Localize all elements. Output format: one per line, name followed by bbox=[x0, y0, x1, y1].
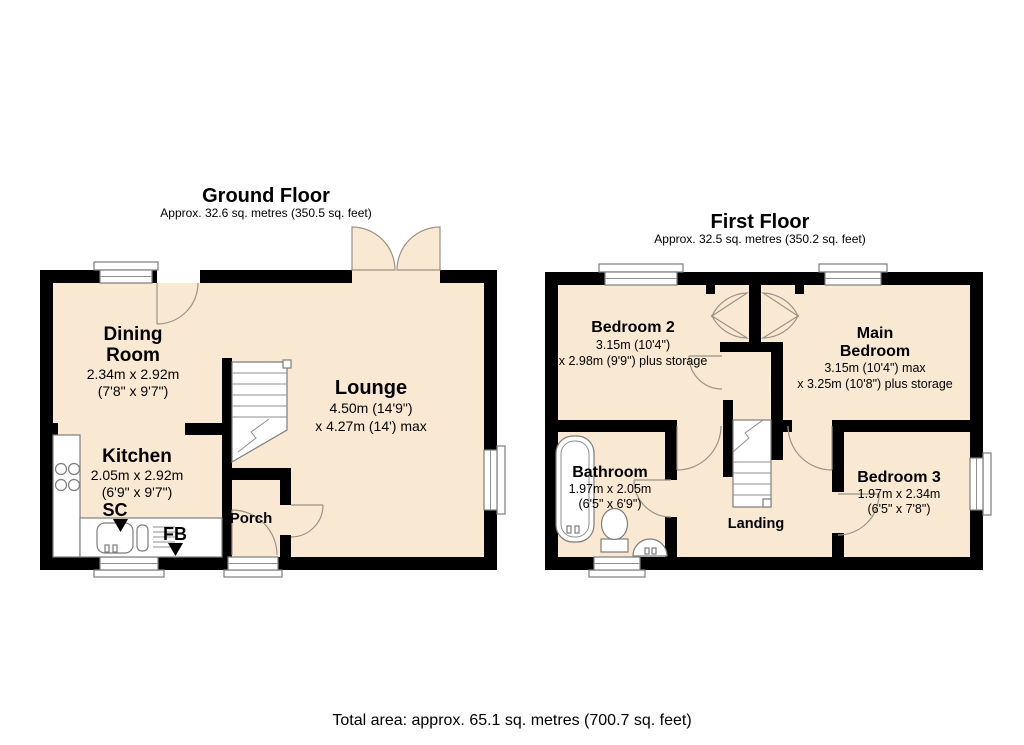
main-bedroom-dims-1: 3.15m (10'4") max bbox=[824, 361, 926, 375]
bathroom-label: Bathroom bbox=[572, 464, 648, 481]
bedroom3-window-icon bbox=[970, 453, 991, 515]
fb-label: FB bbox=[163, 524, 187, 544]
first-floor-plan: Bedroom 2 3.15m (10'4") x 2.98m (9'9") p… bbox=[535, 250, 995, 585]
dining-room-label2: Room bbox=[106, 345, 160, 366]
kitchen-label: Kitchen bbox=[102, 446, 172, 467]
main-bedroom-dims-2: x 3.25m (10'8") plus storage bbox=[797, 377, 953, 391]
bedroom3-dims-metric: 1.97m x 2.34m bbox=[858, 487, 941, 501]
porch-label: Porch bbox=[230, 510, 273, 527]
toilet-icon bbox=[601, 509, 628, 553]
bedroom2-dims-2: x 2.98m (9'9") plus storage bbox=[559, 354, 708, 368]
french-doors-icon bbox=[352, 227, 440, 283]
bedroom2-window-icon bbox=[599, 264, 683, 285]
ground-floor-plan: Dining Room 2.34m x 2.92m (7'8" x 9'7") … bbox=[30, 215, 520, 585]
ground-floor-title: Ground Floor bbox=[116, 186, 416, 206]
lounge-dims-1: 4.50m (14'9") bbox=[329, 400, 412, 416]
kitchen-window-icon bbox=[94, 557, 164, 577]
main-bedroom-label: Main bbox=[857, 325, 893, 342]
bedroom2-label: Bedroom 2 bbox=[591, 319, 675, 336]
sc-label: SC bbox=[102, 500, 127, 520]
bathroom-dims-metric: 1.97m x 2.05m bbox=[569, 482, 652, 496]
floorplan-page: Ground Floor Approx. 32.6 sq. metres (35… bbox=[0, 0, 1024, 745]
landing-label: Landing bbox=[728, 516, 784, 532]
dining-room-label: Dining bbox=[103, 324, 162, 345]
main-bedroom-window-icon bbox=[819, 264, 887, 285]
main-bedroom-label2: Bedroom bbox=[840, 343, 910, 360]
lounge-label: Lounge bbox=[335, 377, 407, 399]
dining-room-dims-metric: 2.34m x 2.92m bbox=[87, 366, 180, 382]
total-area-label: Total area: approx. 65.1 sq. metres (700… bbox=[0, 712, 1024, 730]
kitchen-dims-imperial: (6'9" x 9'7") bbox=[102, 484, 173, 500]
bedroom3-dims-imperial: (6'5" x 7'8") bbox=[868, 502, 931, 516]
first-floor-subtitle: Approx. 32.5 sq. metres (350.2 sq. feet) bbox=[610, 233, 910, 246]
bedroom3-label: Bedroom 3 bbox=[857, 469, 941, 486]
first-stairs-icon bbox=[733, 420, 771, 507]
bathroom-dims-imperial: (6'5" x 6'9") bbox=[579, 497, 642, 511]
dining-window-icon bbox=[94, 262, 158, 283]
lounge-window-icon bbox=[484, 446, 505, 514]
first-floor-title: First Floor bbox=[610, 212, 910, 232]
bedroom2-dims-1: 3.15m (10'4") bbox=[596, 338, 670, 352]
lounge-dims-2: x 4.27m (14') max bbox=[315, 418, 427, 434]
bathroom-window-icon bbox=[589, 557, 645, 577]
dining-room-dims-imperial: (7'8" x 9'7") bbox=[98, 383, 169, 399]
kitchen-dims-metric: 2.05m x 2.92m bbox=[91, 467, 184, 483]
